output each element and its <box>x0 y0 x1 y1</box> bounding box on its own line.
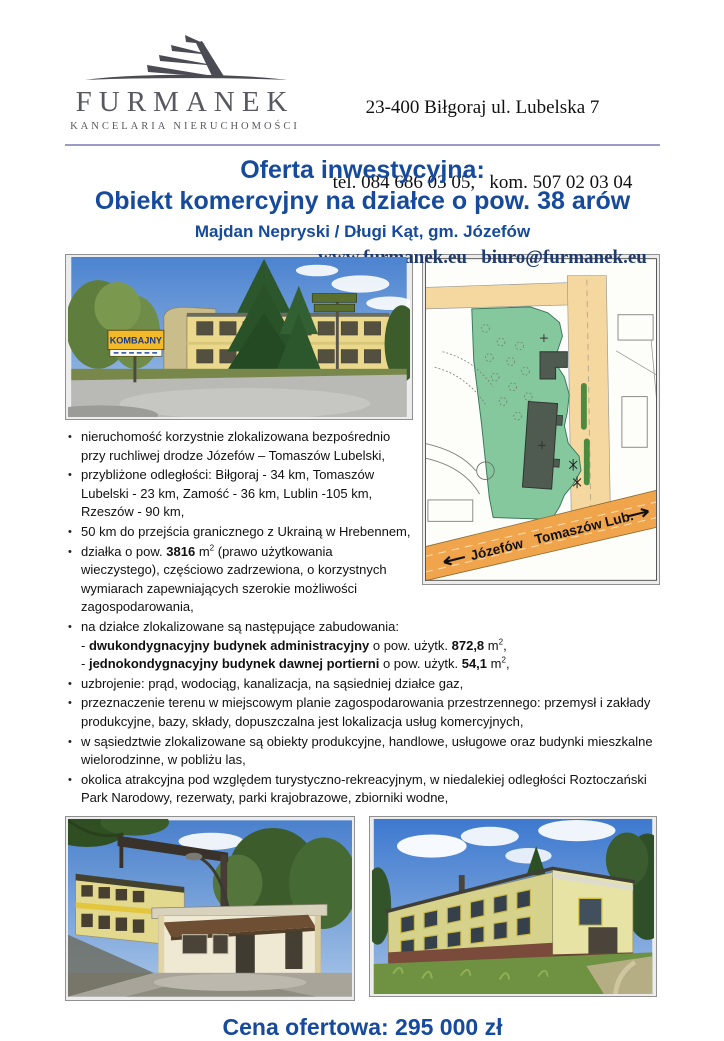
company-logo: FURMANEK KANCELARIA NIERUCHOMOŚCI <box>65 33 305 132</box>
building-logo-icon <box>65 33 305 85</box>
detail-border-crossing: 50 km do przejścia granicznego z Ukrainą… <box>65 523 660 542</box>
photo-admin-building-side <box>369 816 657 997</box>
header: FURMANEK KANCELARIA NIERUCHOMOŚCI 23-400… <box>65 33 660 136</box>
detail-plot-area: działka o pow. 3816 m2 (prawo użytkowani… <box>65 543 660 617</box>
photo2-gatehouse-building <box>152 904 327 975</box>
company-name: FURMANEK <box>65 86 305 119</box>
photo-building-front: KOMBAJNY <box>65 254 413 420</box>
contact-address: 23-400 Biłgoraj ul. Lubelska 7 <box>305 95 660 120</box>
detail-location: nieruchomość korzystnie zlokalizowana be… <box>65 428 660 465</box>
detail-neighbourhood: w sąsiedztwie zlokalizowane są obiekty p… <box>65 733 660 770</box>
offer-title-line2: Obiekt komercyjny na działce o pow. 38 a… <box>65 186 660 217</box>
detail-utilities: uzbrojenie: prąd, wodociąg, kanalizacja,… <box>65 675 660 694</box>
detail-buildings: na działce zlokalizowane są następujące … <box>65 618 660 674</box>
photos-row <box>65 816 660 1001</box>
content: Józefów Tomaszów Lub. <box>65 254 660 1041</box>
detail-tourist-area: okolica atrakcyjna pod względem turystyc… <box>65 771 660 808</box>
offer-page: FURMANEK KANCELARIA NIERUCHOMOŚCI 23-400… <box>0 0 724 1024</box>
detail-zoning: przeznaczenie terenu w miejscowym planie… <box>65 694 660 731</box>
company-tagline: KANCELARIA NIERUCHOMOŚCI <box>65 121 305 132</box>
photo-gatehouse <box>65 816 355 1001</box>
property-details-list: nieruchomość korzystnie zlokalizowana be… <box>65 428 660 808</box>
photo1-sign-text: KOMBAJNY <box>110 336 162 346</box>
map-median-strip <box>581 383 587 430</box>
detail-distances: przybliżone odległości: Biłgoraj - 34 km… <box>65 466 660 522</box>
offer-price: Cena ofertowa: 295 000 zł <box>65 1014 660 1041</box>
